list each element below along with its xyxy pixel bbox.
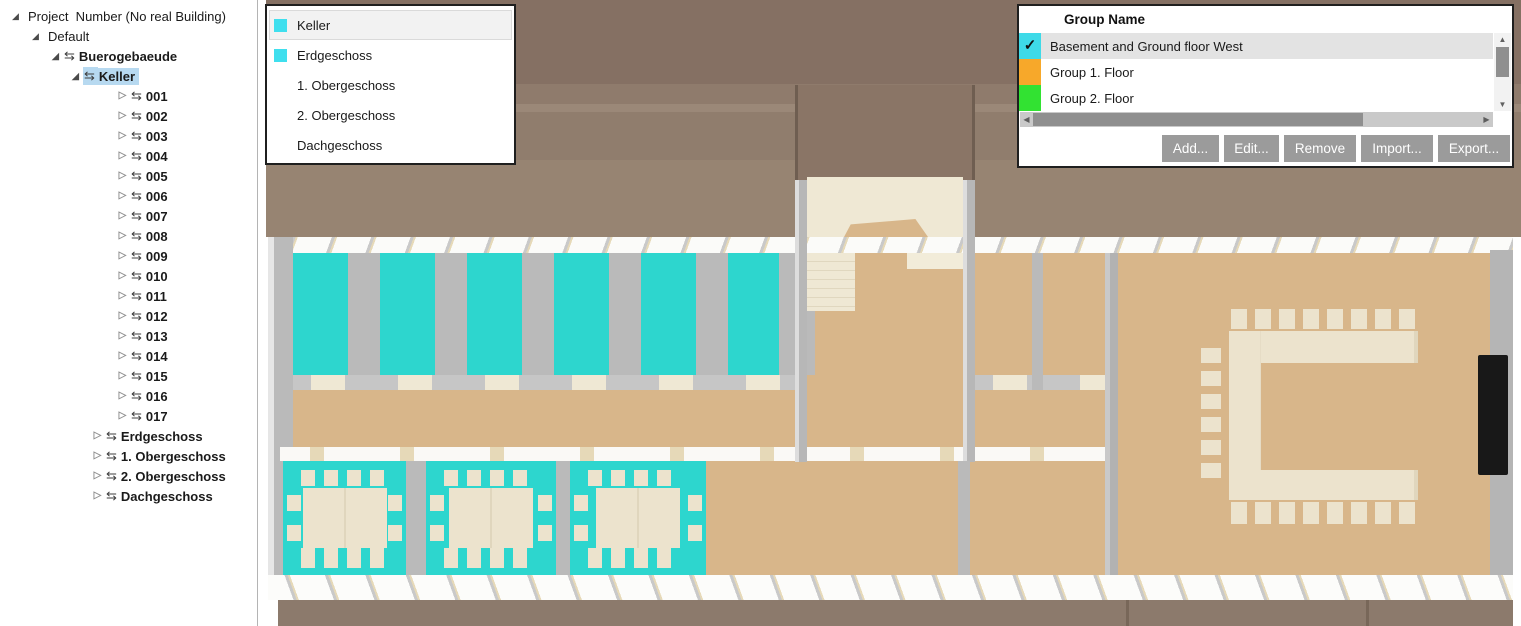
tree-expander-icon[interactable]: ▷ xyxy=(115,246,130,266)
group-name-header: Group Name xyxy=(1019,6,1512,33)
floor-color-swatch xyxy=(274,139,287,152)
floor-label: Erdgeschoss xyxy=(297,48,372,63)
chair-column xyxy=(538,495,552,541)
link-arrows-icon: ⇆ xyxy=(130,227,145,245)
link-arrows-icon: ⇆ xyxy=(130,87,145,105)
tree-expander-icon[interactable]: ▷ xyxy=(90,486,105,506)
group-row[interactable]: Group 2. Floor xyxy=(1019,85,1493,111)
tree-item-label: Default xyxy=(47,28,93,45)
link-arrows-icon: ⇆ xyxy=(130,347,145,365)
tree-expander-icon[interactable]: ▷ xyxy=(115,146,130,166)
partition-wall xyxy=(556,461,570,575)
floor-list-item[interactable]: Dachgeschoss xyxy=(267,130,514,160)
meeting-room-1[interactable] xyxy=(283,461,406,575)
tree-item[interactable]: ▷ ⇆ 006 xyxy=(0,186,257,206)
scroll-down-icon[interactable]: ▼ xyxy=(1494,98,1511,111)
tree-item[interactable]: ▷ ⇆ 003 xyxy=(0,126,257,146)
chair-column xyxy=(388,495,402,541)
edit-button[interactable]: Edit... xyxy=(1224,135,1279,162)
remove-button[interactable]: Remove xyxy=(1284,135,1356,162)
check-icon xyxy=(1019,85,1041,111)
tree-item[interactable]: ▷ ⇆ 009 xyxy=(0,246,257,266)
add-button[interactable]: Add... xyxy=(1162,135,1219,162)
import-button[interactable]: Import... xyxy=(1361,135,1433,162)
tree-expander-icon[interactable]: ▷ xyxy=(115,126,130,146)
tree-expander-icon[interactable]: ▷ xyxy=(115,326,130,346)
link-arrows-icon: ⇆ xyxy=(130,267,145,285)
link-arrows-icon: ⇆ xyxy=(130,147,145,165)
link-arrows-icon: ⇆ xyxy=(130,327,145,345)
floor-color-swatch xyxy=(274,79,287,92)
link-arrows-icon: ⇆ xyxy=(130,247,145,265)
group-row[interactable]: ✓ Basement and Ground floor West xyxy=(1019,33,1493,59)
tree-item[interactable]: ▷ ⇆ Dachgeschoss xyxy=(0,486,257,506)
link-arrows-icon: ⇆ xyxy=(130,387,145,405)
tree-expander-icon[interactable]: ▷ xyxy=(115,286,130,306)
floor-color-swatch xyxy=(274,49,287,62)
chair-row xyxy=(1231,309,1423,329)
link-arrows-icon: ⇆ xyxy=(130,167,145,185)
tree-expander-icon[interactable]: ◢ xyxy=(8,6,23,26)
chair-row xyxy=(301,470,393,486)
tree-item[interactable]: ▷ ⇆ 002 xyxy=(0,106,257,126)
tree-expander-icon[interactable]: ▷ xyxy=(90,426,105,446)
floor-list-item[interactable]: Keller xyxy=(269,10,512,40)
tree-item-label: 004 xyxy=(145,148,172,165)
conference-room-wall xyxy=(1105,253,1118,575)
window-row-top xyxy=(268,237,1513,253)
link-arrows-icon: ⇆ xyxy=(130,367,145,385)
partition-wall xyxy=(958,461,970,575)
check-icon: ✓ xyxy=(1019,33,1041,59)
tree-item-label: 010 xyxy=(145,268,172,285)
window-row-bottom xyxy=(268,575,1513,600)
meeting-table xyxy=(303,488,387,548)
tree-item-label: Erdgeschoss xyxy=(120,428,207,445)
meeting-room-2[interactable] xyxy=(426,461,556,575)
tree-expander-icon[interactable]: ▷ xyxy=(115,386,130,406)
tree-item-label: Project Number (No real Building) xyxy=(27,8,230,25)
export-button[interactable]: Export... xyxy=(1438,135,1510,162)
tree-expander-icon[interactable]: ▷ xyxy=(115,366,130,386)
tree-item[interactable]: ▷ ⇆ 016 xyxy=(0,386,257,406)
corridor-wall-south xyxy=(280,447,1118,461)
staircase-landing xyxy=(907,253,963,269)
tree-expander-icon[interactable]: ◢ xyxy=(48,46,63,66)
floors-list-panel: Keller Erdgeschoss 1. Obergeschoss 2. Ob… xyxy=(265,4,516,165)
partition-wall xyxy=(1032,253,1043,390)
link-arrows-icon: ⇆ xyxy=(83,67,98,85)
tree-item-label: 2. Obergeschoss xyxy=(120,468,230,485)
tree-item-label: 011 xyxy=(145,288,171,305)
meeting-table xyxy=(449,488,533,548)
link-arrows-icon: ⇆ xyxy=(130,307,145,325)
group-list: ✓ Basement and Ground floor West Group 1… xyxy=(1019,33,1493,111)
tree-expander-icon[interactable]: ▷ xyxy=(115,106,130,126)
tree-item[interactable]: ▷ ⇆ 010 xyxy=(0,266,257,286)
tree-item[interactable]: ▷ ⇆ 012 xyxy=(0,306,257,326)
link-arrows-icon: ⇆ xyxy=(105,467,120,485)
tree-item-label: Dachgeschoss xyxy=(120,488,217,505)
group-name-label: Group 1. Floor xyxy=(1050,65,1134,80)
tree-item-label: 001 xyxy=(145,88,172,105)
vertical-scroll-thumb[interactable] xyxy=(1496,47,1509,77)
tree-expander-icon[interactable]: ▷ xyxy=(115,266,130,286)
ground-seam xyxy=(1366,600,1369,626)
link-arrows-icon: ⇆ xyxy=(130,127,145,145)
tree-item[interactable]: ◢ Project Number (No real Building) xyxy=(0,6,257,26)
link-arrows-icon: ⇆ xyxy=(105,447,120,465)
tree-expander-icon[interactable]: ▷ xyxy=(90,446,105,466)
ground-seam xyxy=(1126,600,1129,626)
tree-item-label: Buerogebaeude xyxy=(78,48,181,65)
tree-item[interactable]: ▷ ⇆ 004 xyxy=(0,146,257,166)
floor-list-item[interactable]: Erdgeschoss xyxy=(267,40,514,70)
group-actions: Add...Edit...RemoveImport...Export... xyxy=(1162,135,1510,162)
floor-label: Keller xyxy=(297,18,330,33)
tree-item-label: 003 xyxy=(145,128,172,145)
chair-column xyxy=(688,495,702,541)
tree-item[interactable]: ▷ ⇆ 008 xyxy=(0,226,257,246)
tree-item[interactable]: ▷ ⇆ 007 xyxy=(0,206,257,226)
tree-expander-icon[interactable]: ◢ xyxy=(28,26,43,46)
tree-expander-icon[interactable]: ▷ xyxy=(115,346,130,366)
stairwell-wall-left xyxy=(795,180,807,462)
tree-item-label: 005 xyxy=(145,168,172,185)
floor-list-item[interactable]: 1. Obergeschoss xyxy=(267,70,514,100)
tree-item[interactable]: ▷ ⇆ 001 xyxy=(0,86,257,106)
tree-item-label: Keller xyxy=(98,68,139,85)
tree-item-label: 013 xyxy=(145,328,172,345)
tree-item-label: 006 xyxy=(145,188,172,205)
meeting-table xyxy=(596,488,680,548)
tree-item-label: 1. Obergeschoss xyxy=(120,448,230,465)
tree-item[interactable]: ▷ ⇆ Erdgeschoss xyxy=(0,426,257,446)
scroll-right-icon[interactable]: ▶ xyxy=(1480,112,1493,127)
tree-expander-icon[interactable]: ▷ xyxy=(115,226,130,246)
group-name-label: Group 2. Floor xyxy=(1050,91,1134,106)
check-icon xyxy=(1019,59,1041,85)
ground-strip xyxy=(278,600,1513,626)
highlighted-rooms-north[interactable] xyxy=(293,253,815,375)
link-arrows-icon: ⇆ xyxy=(130,207,145,225)
tree-item[interactable]: ▷ ⇆ 017 xyxy=(0,406,257,426)
tree-expander-icon[interactable]: ▷ xyxy=(115,406,130,426)
tree-item[interactable]: ▷ ⇆ 005 xyxy=(0,166,257,186)
group-name-label: Basement and Ground floor West xyxy=(1050,39,1243,54)
floor-list-item[interactable]: 2. Obergeschoss xyxy=(267,100,514,130)
project-tree-panel: ◢ Project Number (No real Building) ◢ De… xyxy=(0,0,258,626)
chair-row xyxy=(301,548,393,568)
floor-label: Dachgeschoss xyxy=(297,138,382,153)
chair-row xyxy=(588,548,680,568)
tree-item[interactable]: ◢ ⇆ Keller xyxy=(0,66,257,86)
tree-expander-icon[interactable]: ▷ xyxy=(115,186,130,206)
chair-column xyxy=(430,495,444,541)
tree-item[interactable]: ◢ Default xyxy=(0,26,257,46)
tree-item-label: 015 xyxy=(145,368,172,385)
tree-expander-icon[interactable]: ◢ xyxy=(68,66,83,86)
tree-item-label: 016 xyxy=(145,388,172,405)
tree-item[interactable]: ◢ ⇆ Buerogebaeude xyxy=(0,46,257,66)
horizontal-scrollbar[interactable]: ◀ ▶ xyxy=(1020,112,1493,127)
scroll-left-icon[interactable]: ◀ xyxy=(1020,112,1033,127)
chair-row xyxy=(444,470,536,486)
link-arrows-icon: ⇆ xyxy=(130,107,145,125)
tree-item-label: 017 xyxy=(145,408,172,425)
link-arrows-icon: ⇆ xyxy=(63,47,78,65)
tree-expander-icon[interactable]: ▷ xyxy=(115,306,130,326)
chair-column xyxy=(574,495,588,541)
tree-item-label: 009 xyxy=(145,248,172,265)
group-row[interactable]: Group 1. Floor xyxy=(1019,59,1493,85)
staircase-steps xyxy=(807,253,855,311)
tree-item-label: 007 xyxy=(145,208,172,225)
tree-item-label: 014 xyxy=(145,348,172,365)
link-arrows-icon: ⇆ xyxy=(105,427,120,445)
chair-column xyxy=(1201,348,1221,486)
horizontal-scroll-thumb[interactable] xyxy=(1033,113,1363,126)
link-arrows-icon: ⇆ xyxy=(130,187,145,205)
partition-wall xyxy=(779,253,795,375)
projection-screen xyxy=(1478,355,1508,475)
link-arrows-icon: ⇆ xyxy=(105,487,120,505)
tree-expander-icon[interactable]: ▷ xyxy=(115,86,130,106)
meeting-room-3[interactable] xyxy=(570,461,706,575)
link-arrows-icon: ⇆ xyxy=(130,287,145,305)
chair-row xyxy=(588,470,680,486)
tree-item[interactable]: ▷ ⇆ 2. Obergeschoss xyxy=(0,466,257,486)
chair-column xyxy=(287,495,301,541)
floor-label: 2. Obergeschoss xyxy=(297,108,395,123)
floor-label: 1. Obergeschoss xyxy=(297,78,395,93)
tree-expander-icon[interactable]: ▷ xyxy=(90,466,105,486)
vertical-scrollbar[interactable]: ▲ ▼ xyxy=(1494,33,1511,111)
floor-color-swatch xyxy=(274,109,287,122)
chair-row xyxy=(1231,502,1423,524)
tree-item-label: 012 xyxy=(145,308,172,325)
tree-expander-icon[interactable]: ▷ xyxy=(115,206,130,226)
corridor-wall-north-west xyxy=(293,375,795,390)
app-window: ◢ Project Number (No real Building) ◢ De… xyxy=(0,0,1521,626)
tree-item[interactable]: ▷ ⇆ 015 xyxy=(0,366,257,386)
tree-expander-icon[interactable]: ▷ xyxy=(115,166,130,186)
floor-color-swatch xyxy=(274,19,287,32)
partition-wall xyxy=(406,461,426,575)
link-arrows-icon: ⇆ xyxy=(130,407,145,425)
tree-item-label: 008 xyxy=(145,228,172,245)
chair-row xyxy=(444,548,536,568)
tree-item[interactable]: ▷ ⇆ 011 xyxy=(0,286,257,306)
tree-item[interactable]: ▷ ⇆ 014 xyxy=(0,346,257,366)
tree-item[interactable]: ▷ ⇆ 1. Obergeschoss xyxy=(0,446,257,466)
stairwell-wall-right xyxy=(963,180,975,462)
scroll-up-icon[interactable]: ▲ xyxy=(1494,33,1511,46)
conference-table-bottom xyxy=(1229,470,1418,500)
group-panel: Group Name ✓ Basement and Ground floor W… xyxy=(1017,4,1514,168)
tree-item-label: 002 xyxy=(145,108,172,125)
tree-item[interactable]: ▷ ⇆ 013 xyxy=(0,326,257,346)
